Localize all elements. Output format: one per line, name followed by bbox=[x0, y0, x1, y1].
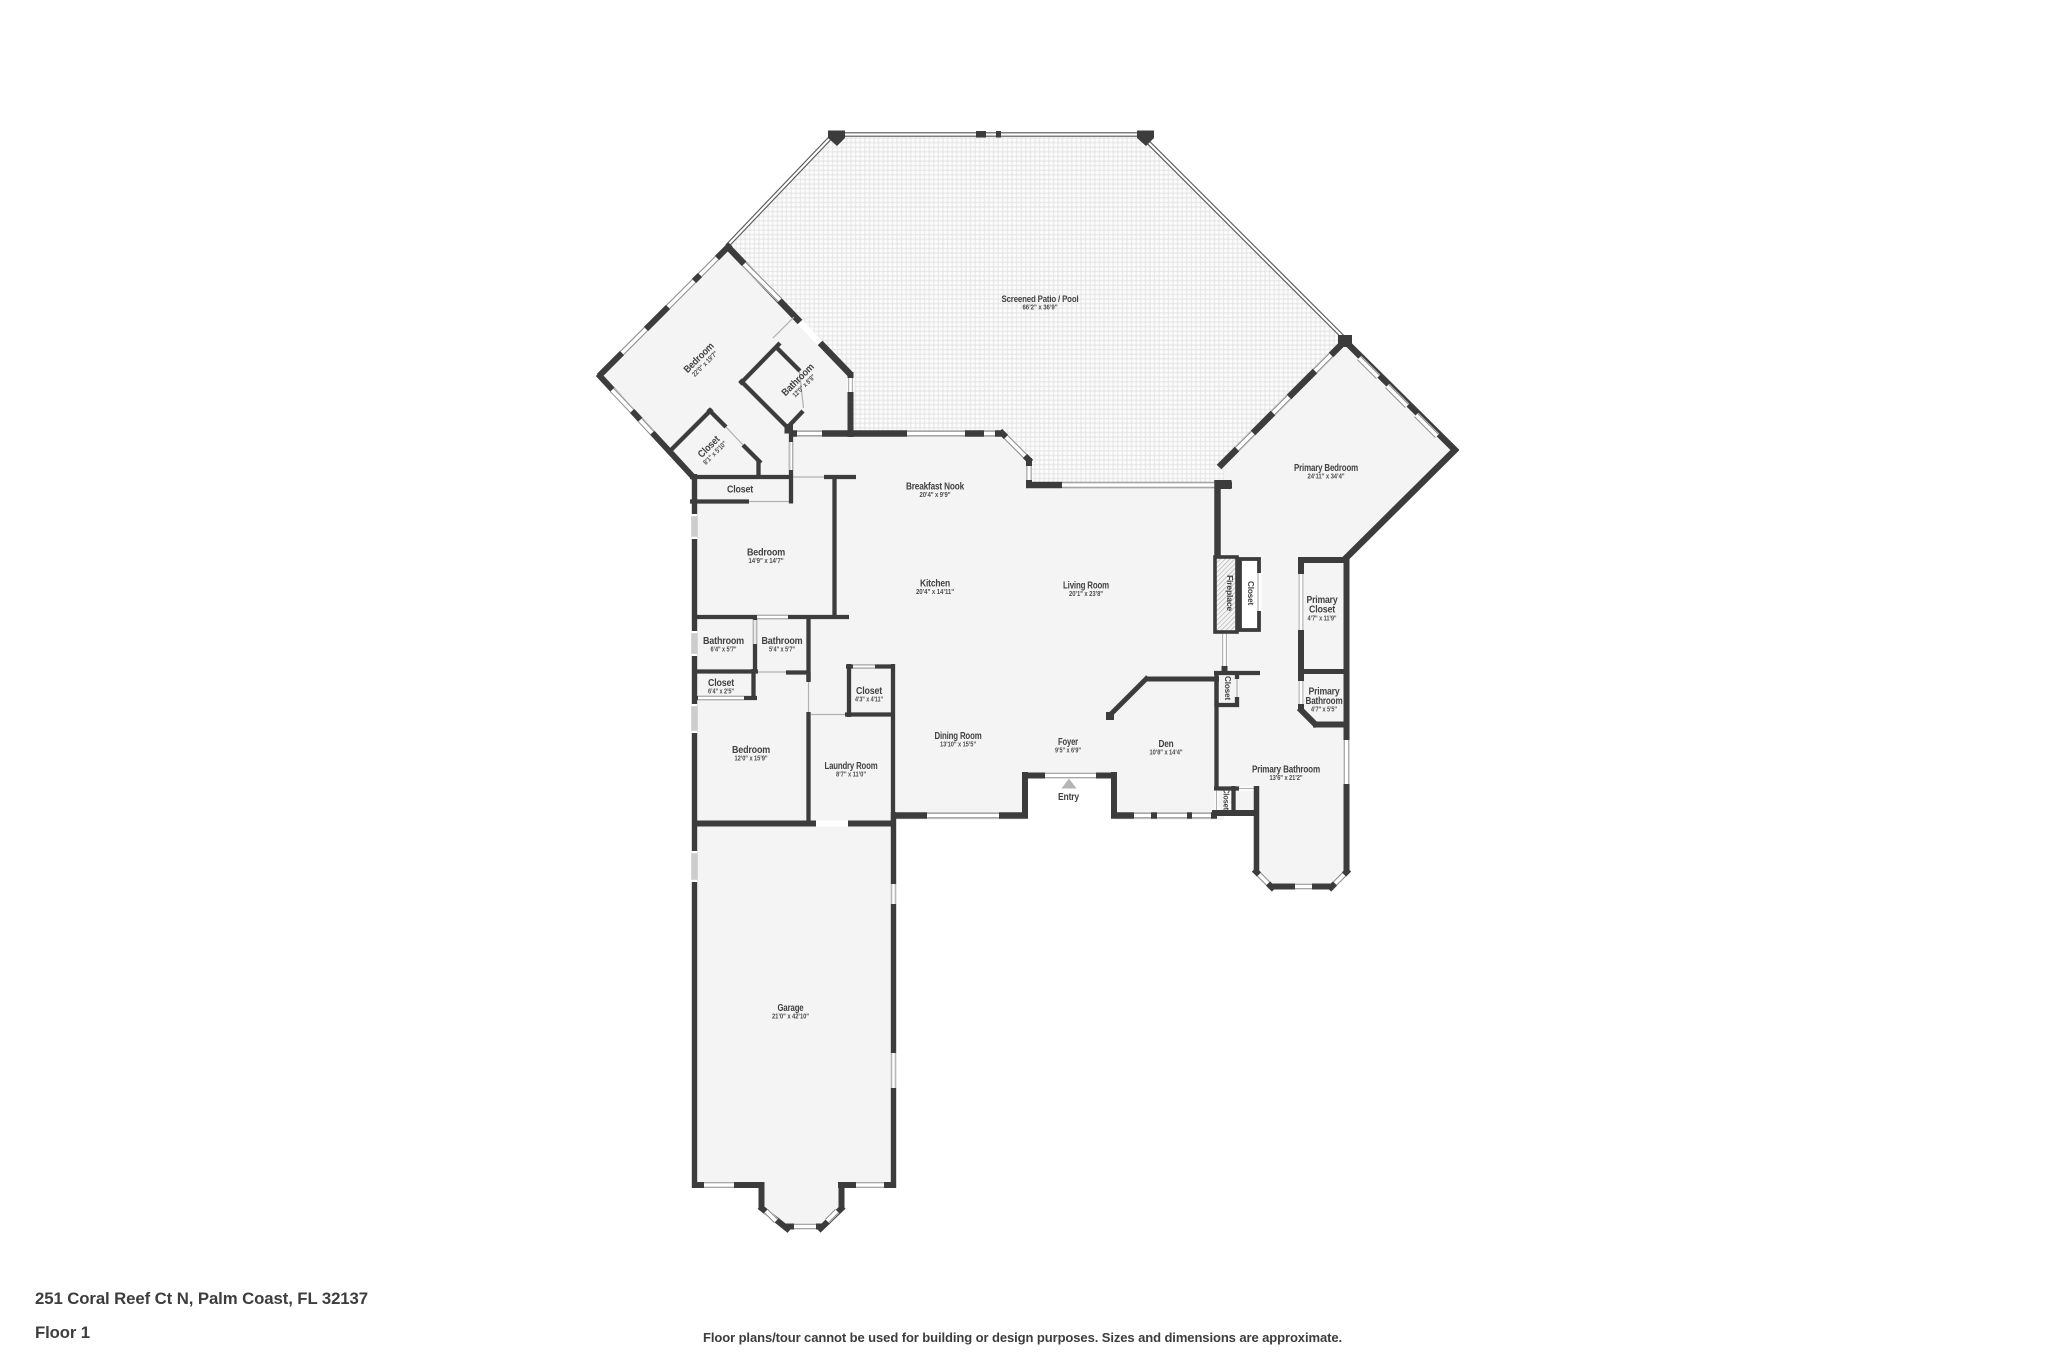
svg-text:Kitchen: Kitchen bbox=[920, 579, 950, 590]
svg-text:21’0" x 42’10": 21’0" x 42’10" bbox=[772, 1014, 809, 1021]
svg-text:4’7" x 5’5": 4’7" x 5’5" bbox=[1311, 707, 1337, 714]
svg-text:Closet: Closet bbox=[1309, 605, 1336, 616]
svg-text:Closet: Closet bbox=[1246, 581, 1256, 605]
svg-text:Bedroom: Bedroom bbox=[747, 548, 785, 559]
svg-text:Bathroom: Bathroom bbox=[762, 636, 803, 647]
svg-text:5’4" x 5’7": 5’4" x 5’7" bbox=[769, 647, 795, 654]
svg-text:Primary Bedroom: Primary Bedroom bbox=[1294, 463, 1358, 474]
svg-text:Laundry Room: Laundry Room bbox=[825, 761, 878, 772]
svg-text:10’8" x 14’4": 10’8" x 14’4" bbox=[1150, 750, 1183, 757]
svg-text:Foyer: Foyer bbox=[1058, 737, 1078, 748]
svg-text:Bathroom: Bathroom bbox=[1306, 696, 1343, 707]
svg-text:Entry: Entry bbox=[1058, 792, 1080, 803]
svg-text:Primary Bathroom: Primary Bathroom bbox=[1252, 765, 1320, 776]
svg-text:20’4" x 9’9": 20’4" x 9’9" bbox=[920, 492, 951, 499]
svg-text:Closet: Closet bbox=[856, 686, 883, 697]
svg-text:6’4" x 5’7": 6’4" x 5’7" bbox=[711, 647, 737, 654]
svg-text:Bathroom: Bathroom bbox=[703, 636, 744, 647]
svg-text:Closet: Closet bbox=[1222, 788, 1232, 810]
svg-text:6’4" x 2’5": 6’4" x 2’5" bbox=[708, 689, 734, 696]
svg-text:Living Room: Living Room bbox=[1063, 581, 1109, 592]
svg-text:Closet: Closet bbox=[1223, 676, 1233, 700]
svg-text:Fireplace: Fireplace bbox=[1225, 575, 1235, 611]
svg-text:Den: Den bbox=[1159, 739, 1174, 750]
svg-text:20’4" x 14’11": 20’4" x 14’11" bbox=[916, 589, 954, 596]
svg-text:14’9" x 14’7": 14’9" x 14’7" bbox=[749, 558, 784, 565]
svg-text:251 Coral Reef Ct N, Palm Coas: 251 Coral Reef Ct N, Palm Coast, FL 3213… bbox=[35, 1289, 368, 1308]
svg-text:Garage: Garage bbox=[778, 1003, 804, 1014]
svg-text:8’7" x 11’0": 8’7" x 11’0" bbox=[836, 772, 866, 779]
svg-text:4’3" x 4’11": 4’3" x 4’11" bbox=[855, 697, 883, 704]
svg-text:Floor plans/tour cannot be use: Floor plans/tour cannot be used for buil… bbox=[703, 1330, 1342, 1345]
svg-text:24’11" x 34’4": 24’11" x 34’4" bbox=[1308, 474, 1345, 481]
svg-text:Bedroom: Bedroom bbox=[732, 745, 770, 756]
svg-text:13’6" x 21’2": 13’6" x 21’2" bbox=[1270, 775, 1303, 782]
svg-text:Closet: Closet bbox=[727, 485, 754, 496]
svg-text:13’10" x 15’5": 13’10" x 15’5" bbox=[940, 742, 976, 749]
svg-text:Floor 1: Floor 1 bbox=[35, 1323, 90, 1342]
svg-text:Dining Room: Dining Room bbox=[935, 731, 982, 742]
svg-text:Closet: Closet bbox=[708, 678, 735, 689]
svg-text:9’5" x 6’9": 9’5" x 6’9" bbox=[1055, 748, 1081, 755]
svg-text:12’0" x 15’9": 12’0" x 15’9" bbox=[735, 756, 768, 763]
svg-text:66’2" x 36’9": 66’2" x 36’9" bbox=[1023, 305, 1058, 312]
svg-text:Screened Patio / Pool: Screened Patio / Pool bbox=[1002, 294, 1079, 305]
svg-text:4’7" x 11’9": 4’7" x 11’9" bbox=[1308, 616, 1337, 623]
svg-text:Breakfast Nook: Breakfast Nook bbox=[906, 482, 965, 493]
svg-text:20’1" x 23’8": 20’1" x 23’8" bbox=[1069, 591, 1103, 598]
